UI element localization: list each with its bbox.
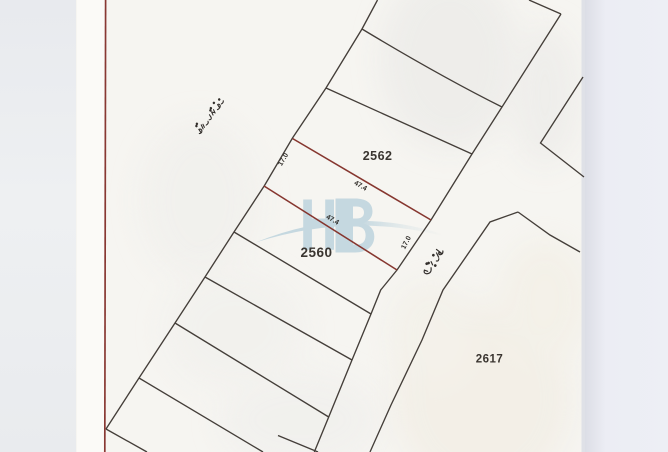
svg-text:2562: 2562 xyxy=(363,149,393,163)
svg-text:2560: 2560 xyxy=(300,245,332,260)
svg-text:2617: 2617 xyxy=(476,353,504,365)
